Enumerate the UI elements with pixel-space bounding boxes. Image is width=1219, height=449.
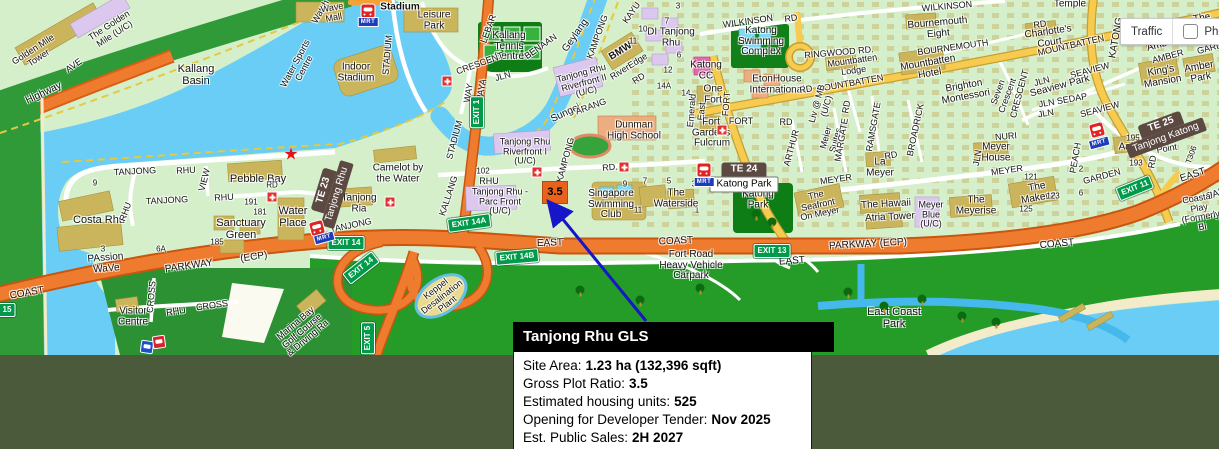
info-popup-body: Site Area:1.23 ha (132,396 sqft) Gross P… <box>513 352 812 449</box>
info-popup: Tanjong Rhu GLS Site Area:1.23 ha (132,3… <box>513 322 834 449</box>
map-canvas[interactable] <box>0 0 1219 355</box>
info-row-housing-units: Estimated housing units:525 <box>523 393 802 411</box>
golf-course <box>98 268 352 355</box>
info-popup-title: Tanjong Rhu GLS <box>513 322 834 352</box>
map-controls: Traffic Photos <box>1120 18 1219 45</box>
gls-site-marker: 3.5 <box>542 181 568 204</box>
info-row-plot-ratio: Gross Plot Ratio:3.5 <box>523 375 802 393</box>
photos-toggle[interactable]: Photos <box>1173 24 1219 39</box>
info-row-tender: Opening for Developer Tender:Nov 2025 <box>523 411 802 429</box>
info-row-public-sales: Est. Public Sales:2H 2027 <box>523 429 802 447</box>
traffic-button[interactable]: Traffic <box>1121 19 1173 44</box>
photos-checkbox[interactable] <box>1183 24 1198 39</box>
info-row-site-area: Site Area:1.23 ha (132,396 sqft) <box>523 357 802 375</box>
map-viewport: Kallang BasinThe Golden Mile (U/C)Golden… <box>0 0 1219 449</box>
